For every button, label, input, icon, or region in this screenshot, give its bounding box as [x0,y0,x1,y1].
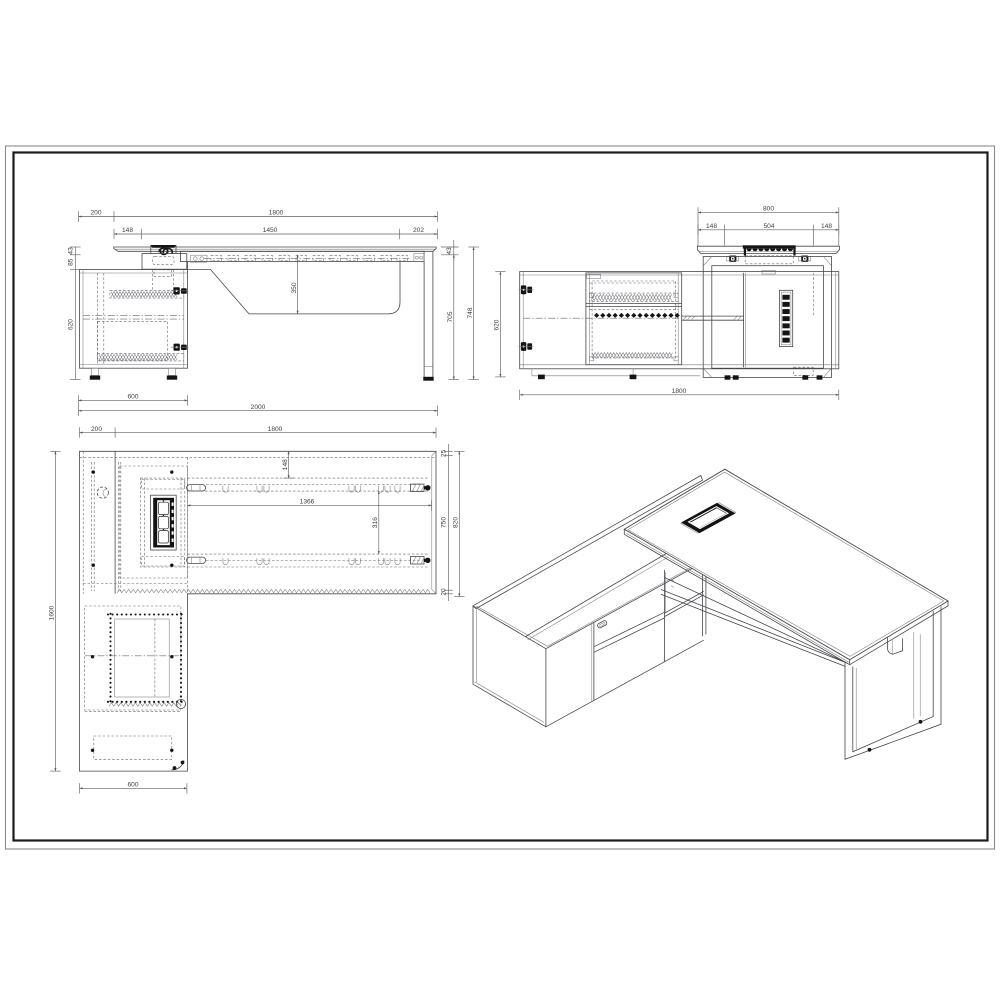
svg-text:750: 750 [441,517,448,528]
svg-text:43: 43 [68,247,75,255]
svg-text:1800: 1800 [268,426,283,433]
svg-text:200: 200 [90,210,101,217]
svg-text:600: 600 [127,782,138,789]
svg-text:350: 350 [291,282,298,293]
svg-text:620: 620 [68,319,75,330]
svg-text:20: 20 [441,588,448,596]
svg-text:1800: 1800 [672,388,687,395]
svg-text:705: 705 [447,311,454,322]
svg-text:148: 148 [122,227,133,234]
svg-text:148: 148 [706,223,717,230]
svg-text:202: 202 [413,227,424,234]
svg-text:43: 43 [446,247,453,255]
svg-text:1366: 1366 [300,499,315,506]
svg-text:148: 148 [821,223,832,230]
svg-text:800: 800 [763,206,774,213]
svg-text:316: 316 [372,517,379,528]
svg-text:600: 600 [127,394,138,401]
svg-text:85: 85 [68,258,75,266]
svg-text:748: 748 [467,307,474,318]
svg-text:25: 25 [441,450,448,458]
svg-text:1600: 1600 [49,605,56,620]
svg-text:1450: 1450 [263,227,278,234]
svg-text:620: 620 [494,319,501,330]
svg-text:2000: 2000 [251,404,266,411]
svg-text:1800: 1800 [269,210,284,217]
svg-text:820: 820 [453,517,460,528]
svg-text:504: 504 [763,223,774,230]
svg-text:200: 200 [91,426,102,433]
svg-text:148: 148 [282,459,289,470]
